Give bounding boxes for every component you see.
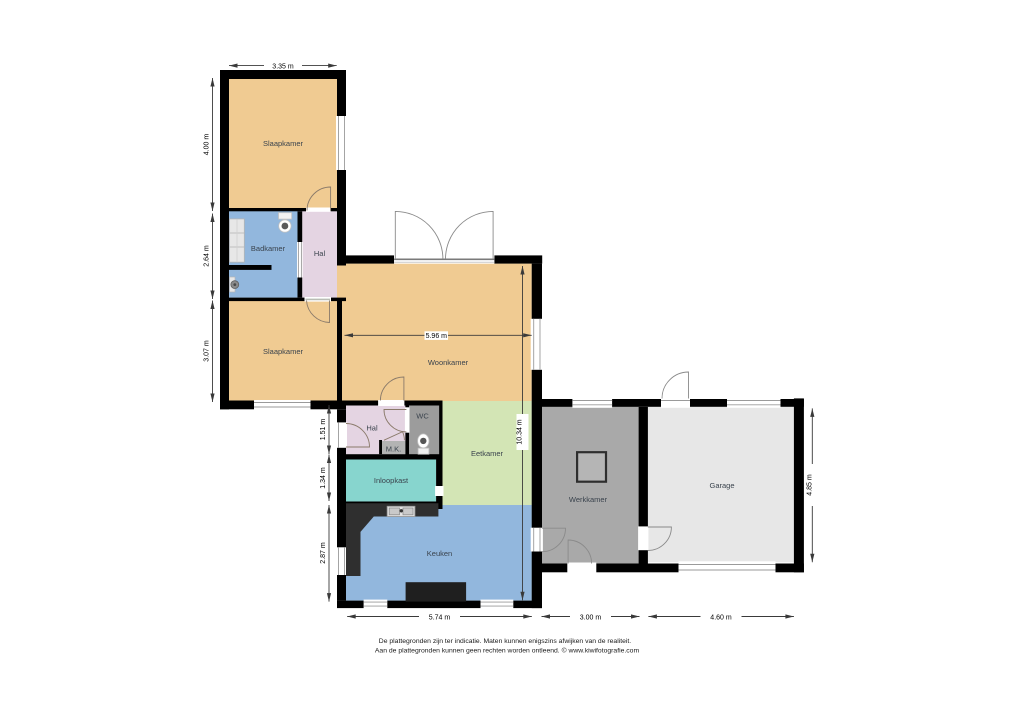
svg-text:4.85 m: 4.85 m <box>807 474 814 496</box>
svg-text:Badkamer: Badkamer <box>251 244 286 253</box>
svg-text:Slaapkamer: Slaapkamer <box>263 139 304 148</box>
svg-text:5.96 m: 5.96 m <box>426 333 448 340</box>
svg-text:2.64 m: 2.64 m <box>204 245 211 267</box>
svg-text:1.51 m: 1.51 m <box>320 419 327 441</box>
svg-text:Aan de plattegronden kunnen ge: Aan de plattegronden kunnen geen rechten… <box>375 647 640 655</box>
svg-text:Keuken: Keuken <box>427 549 452 558</box>
svg-text:10.34 m: 10.34 m <box>517 419 524 444</box>
svg-text:Garage: Garage <box>709 481 734 490</box>
svg-text:Hal: Hal <box>314 249 326 258</box>
svg-text:2.87 m: 2.87 m <box>320 542 327 564</box>
svg-text:Eetkamer: Eetkamer <box>471 449 504 458</box>
svg-text:Hal: Hal <box>366 424 378 433</box>
svg-text:Werkkamer: Werkkamer <box>569 495 608 504</box>
svg-text:3.07 m: 3.07 m <box>204 340 211 362</box>
svg-text:5.74 m: 5.74 m <box>429 614 451 621</box>
svg-text:M.K.: M.K. <box>386 445 401 454</box>
svg-text:4.00 m: 4.00 m <box>204 134 211 156</box>
svg-text:1.34 m: 1.34 m <box>320 467 327 489</box>
svg-text:4.60 m: 4.60 m <box>710 614 732 621</box>
svg-text:Inloopkast: Inloopkast <box>374 476 409 485</box>
svg-text:Woonkamer: Woonkamer <box>428 358 469 367</box>
svg-text:3.00 m: 3.00 m <box>580 614 602 621</box>
svg-text:Slaapkamer: Slaapkamer <box>263 347 304 356</box>
svg-text:3.35 m: 3.35 m <box>272 63 294 70</box>
svg-text:De plattegronden zijn ter indi: De plattegronden zijn ter indicatie. Mat… <box>379 638 631 645</box>
svg-text:WC: WC <box>416 412 429 421</box>
